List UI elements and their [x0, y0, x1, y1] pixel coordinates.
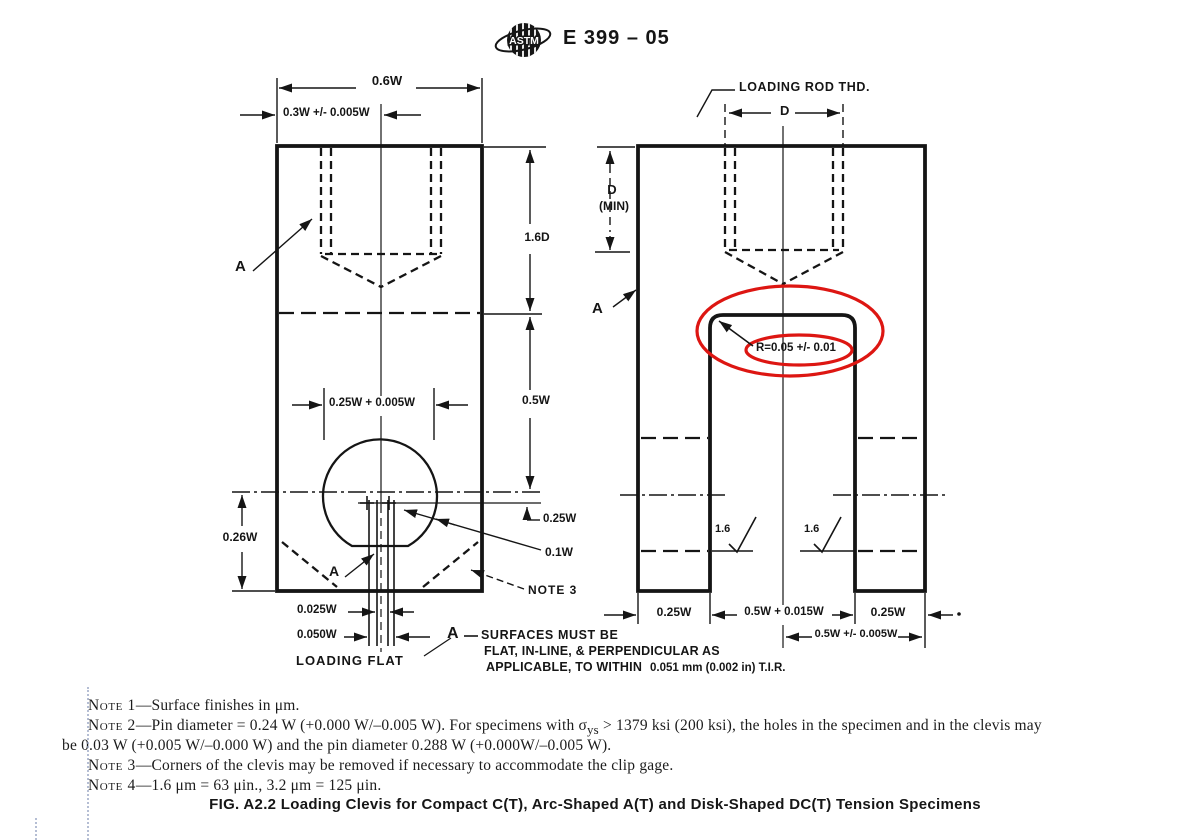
figure-caption: FIG. A2.2 Loading Clevis for Compact C(T… [62, 796, 1128, 813]
note-2-subscript: ys [587, 722, 599, 737]
surface-finish-symbol-left [729, 517, 756, 552]
note-3-label: Note 3 [88, 757, 136, 774]
note-1-body: —Surface finishes in μm. [136, 697, 300, 714]
note-2-label: Note 2 [88, 717, 136, 734]
datum-a-bottom-label: A [329, 564, 339, 579]
finish-right-label: 1.6 [804, 524, 819, 536]
doc-code: E 399 – 05 [563, 27, 670, 50]
dim-body-label: 0.5W [522, 394, 550, 407]
radius-callout-label: R=0.05 +/- 0.01 [756, 342, 836, 354]
surface-callout-line2: FLAT, IN-LINE, & PERPENDICULAR AS [484, 645, 720, 658]
dim-bottom-label: 0.26W [223, 531, 258, 544]
dim-slot-label: 0.5W + 0.015W [744, 606, 824, 618]
note-2-body-post: > 1379 ksi (200 ksi), the holes in the s… [599, 717, 1042, 734]
surface-callout-line3: APPLICABLE, TO WITHIN [486, 661, 642, 674]
dim-leg-left-label: 0.25W [657, 606, 692, 619]
loading-flat-label: LOADING FLAT [296, 654, 404, 668]
note-3-body: —Corners of the clevis may be removed if… [136, 757, 674, 774]
scan-artifact-line [87, 687, 89, 840]
side-view-linework [595, 90, 961, 648]
note-4-label: Note 4 [88, 777, 136, 794]
dim-hole-label: 0.25W + 0.005W [329, 397, 415, 409]
dim-flat-b-label: 0.050W [297, 629, 337, 641]
surface-callout-tolerance: 0.051 mm (0.002 in) T.I.R. [650, 662, 786, 674]
dim-thread-depth-label: 1.6D [524, 231, 549, 244]
note-3: Note 3—Corners of the clevis may be remo… [62, 757, 1138, 775]
scan-artifact-line [35, 818, 37, 840]
dim-d-label: D [780, 104, 789, 118]
dim-flat-height-label: 0.1W [545, 546, 573, 559]
dim-width-label: 0.6W [372, 74, 402, 88]
front-view-linework [232, 78, 546, 656]
note-1-label: Note 1 [88, 697, 136, 714]
dim-half-width-label: 0.3W +/- 0.005W [283, 107, 370, 119]
loading-rod-label: LOADING ROD THD. [739, 81, 870, 94]
dim-leg-right-label: 0.25W [871, 606, 906, 619]
note-2-body-pre: —Pin diameter = 0.24 W (+0.000 W/–0.005 … [136, 717, 587, 734]
finish-left-label: 1.6 [715, 524, 730, 536]
dim-d-min-label-1: D [607, 183, 616, 197]
dim-half-label: 0.5W +/- 0.005W [815, 629, 898, 641]
surface-callout-a: A [447, 626, 459, 643]
dim-flat-a-label: 0.025W [297, 604, 337, 616]
note-1: Note 1—Surface finishes in μm. [62, 697, 1138, 715]
note3-callout-label: NOTE 3 [528, 584, 577, 597]
note-2-continued: be 0.03 W (+0.005 W/–0.000 W) and the pi… [62, 737, 1138, 755]
dim-d-min-label-2: (MIN) [599, 200, 629, 213]
astm-logo-text: ASTM [509, 35, 539, 47]
note-4: Note 4—1.6 μm = 63 μin., 3.2 μm = 125 μi… [62, 777, 1138, 795]
astm-logo-icon: ASTM [494, 23, 553, 57]
note-2: Note 2—Pin diameter = 0.24 W (+0.000 W/–… [62, 717, 1138, 738]
datum-a-side-label: A [592, 301, 603, 317]
document-page: ASTM [0, 0, 1192, 840]
dim-flat-offset-label: 0.25W [543, 513, 576, 525]
surface-callout-line1: SURFACES MUST BE [481, 629, 618, 642]
datum-a-top-label: A [235, 259, 246, 275]
note-4-body: —1.6 μm = 63 μin., 3.2 μm = 125 μin. [136, 777, 382, 794]
